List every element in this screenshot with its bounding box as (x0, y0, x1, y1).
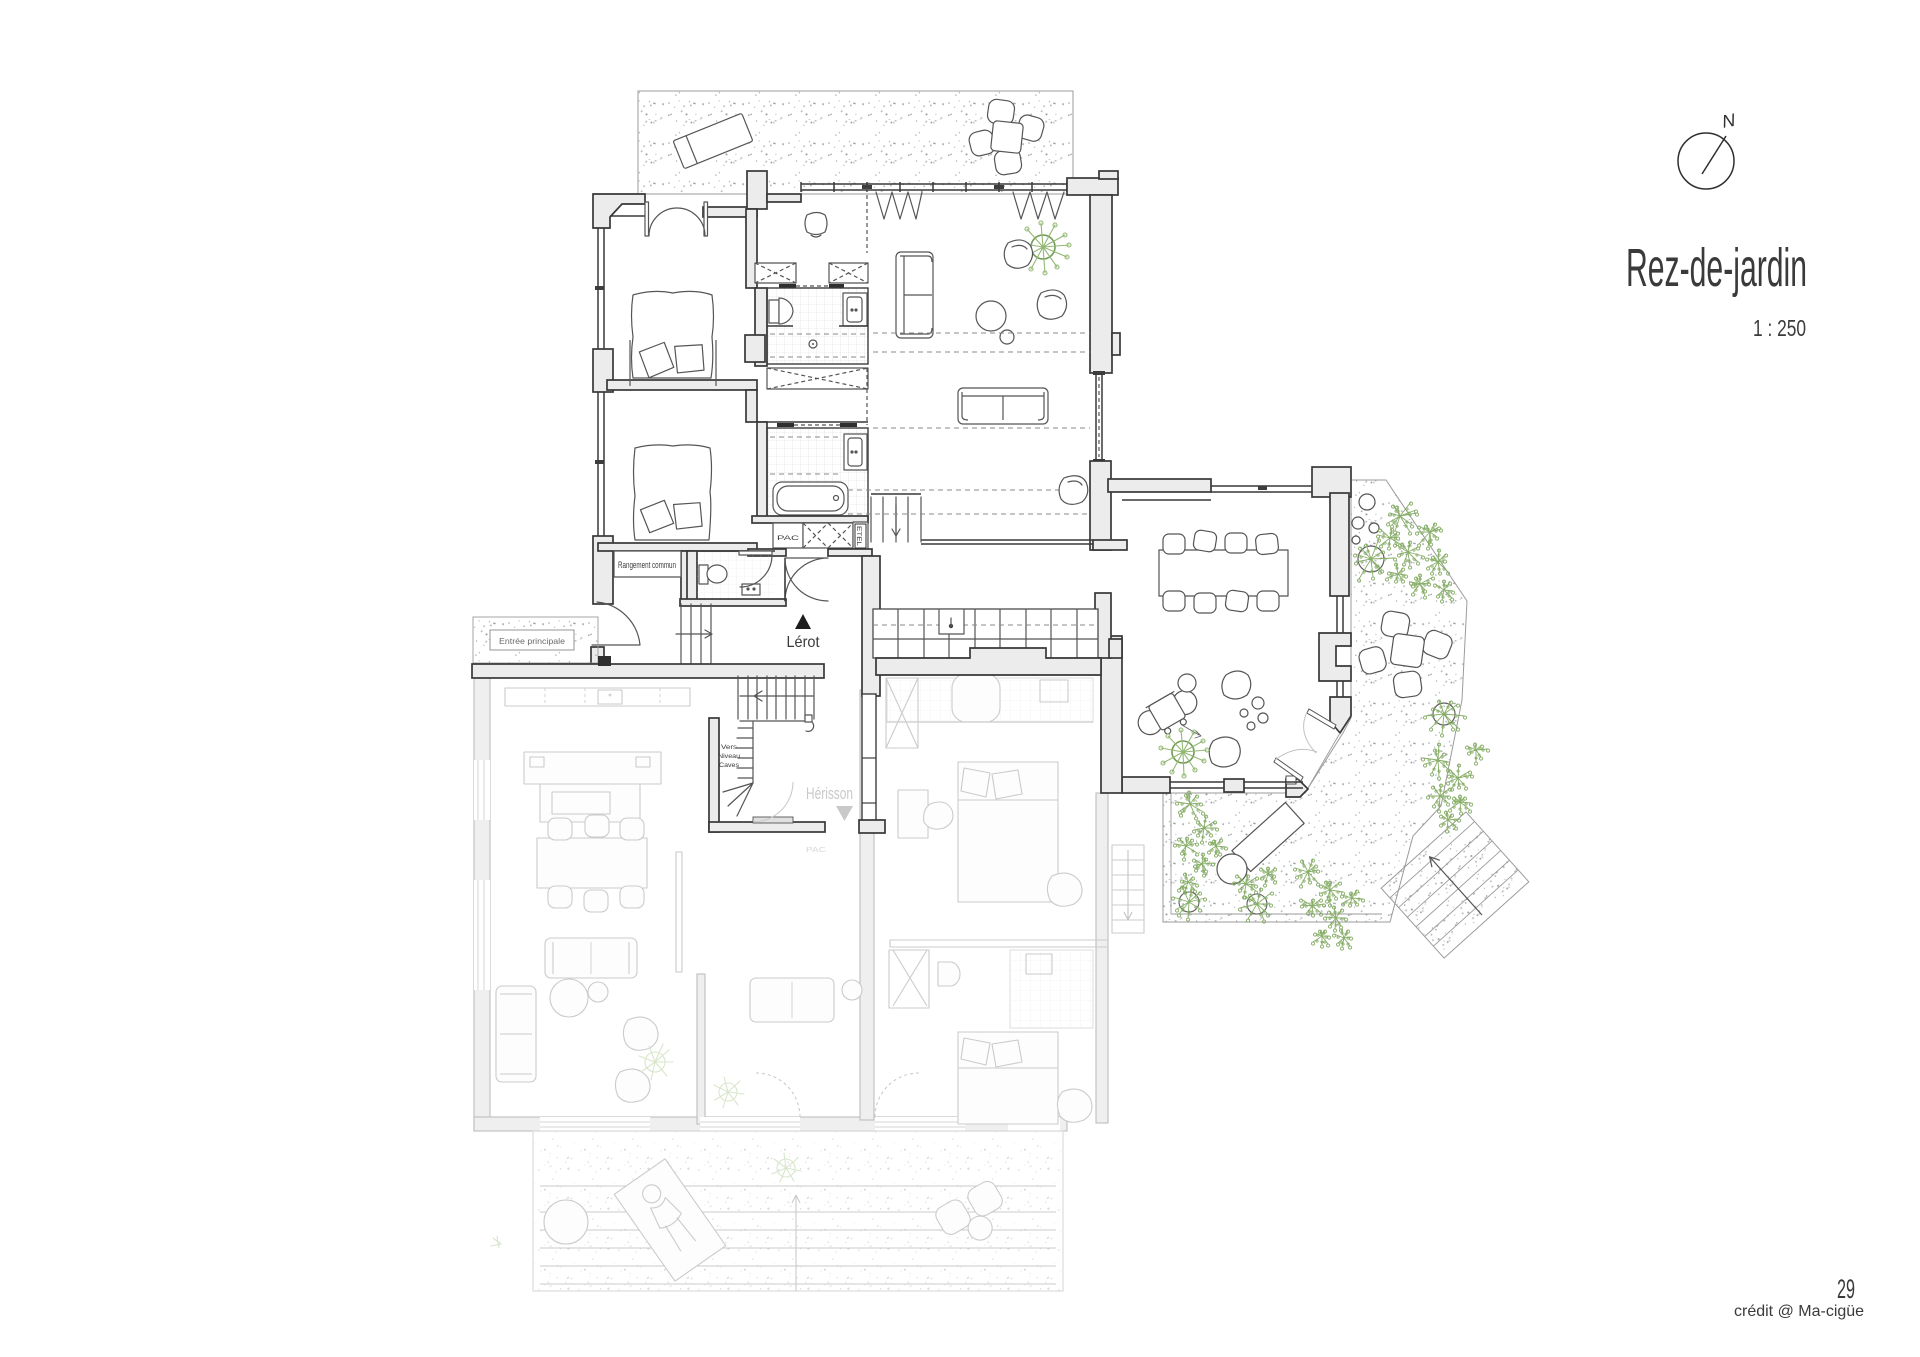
svg-text:ETEL: ETEL (855, 526, 861, 547)
svg-text:PAC: PAC (806, 847, 826, 854)
svg-text:29: 29 (1837, 1274, 1855, 1304)
svg-text:Rez-de-jardin: Rez-de-jardin (1626, 238, 1807, 298)
svg-text:Caves: Caves (719, 762, 740, 769)
svg-text:Lérot: Lérot (787, 634, 821, 651)
svg-text:Hérisson: Hérisson (806, 784, 853, 803)
svg-text:Rangement commun: Rangement commun (618, 560, 676, 570)
svg-text:Vers: Vers (721, 744, 738, 751)
svg-text:1 : 250: 1 : 250 (1753, 315, 1806, 341)
svg-text:Entrée principale: Entrée principale (499, 636, 565, 646)
svg-text:crédit @ Ma-cigüe: crédit @ Ma-cigüe (1734, 1303, 1864, 1320)
svg-text:Niveau: Niveau (718, 753, 740, 760)
svg-text:PAC: PAC (777, 535, 800, 542)
